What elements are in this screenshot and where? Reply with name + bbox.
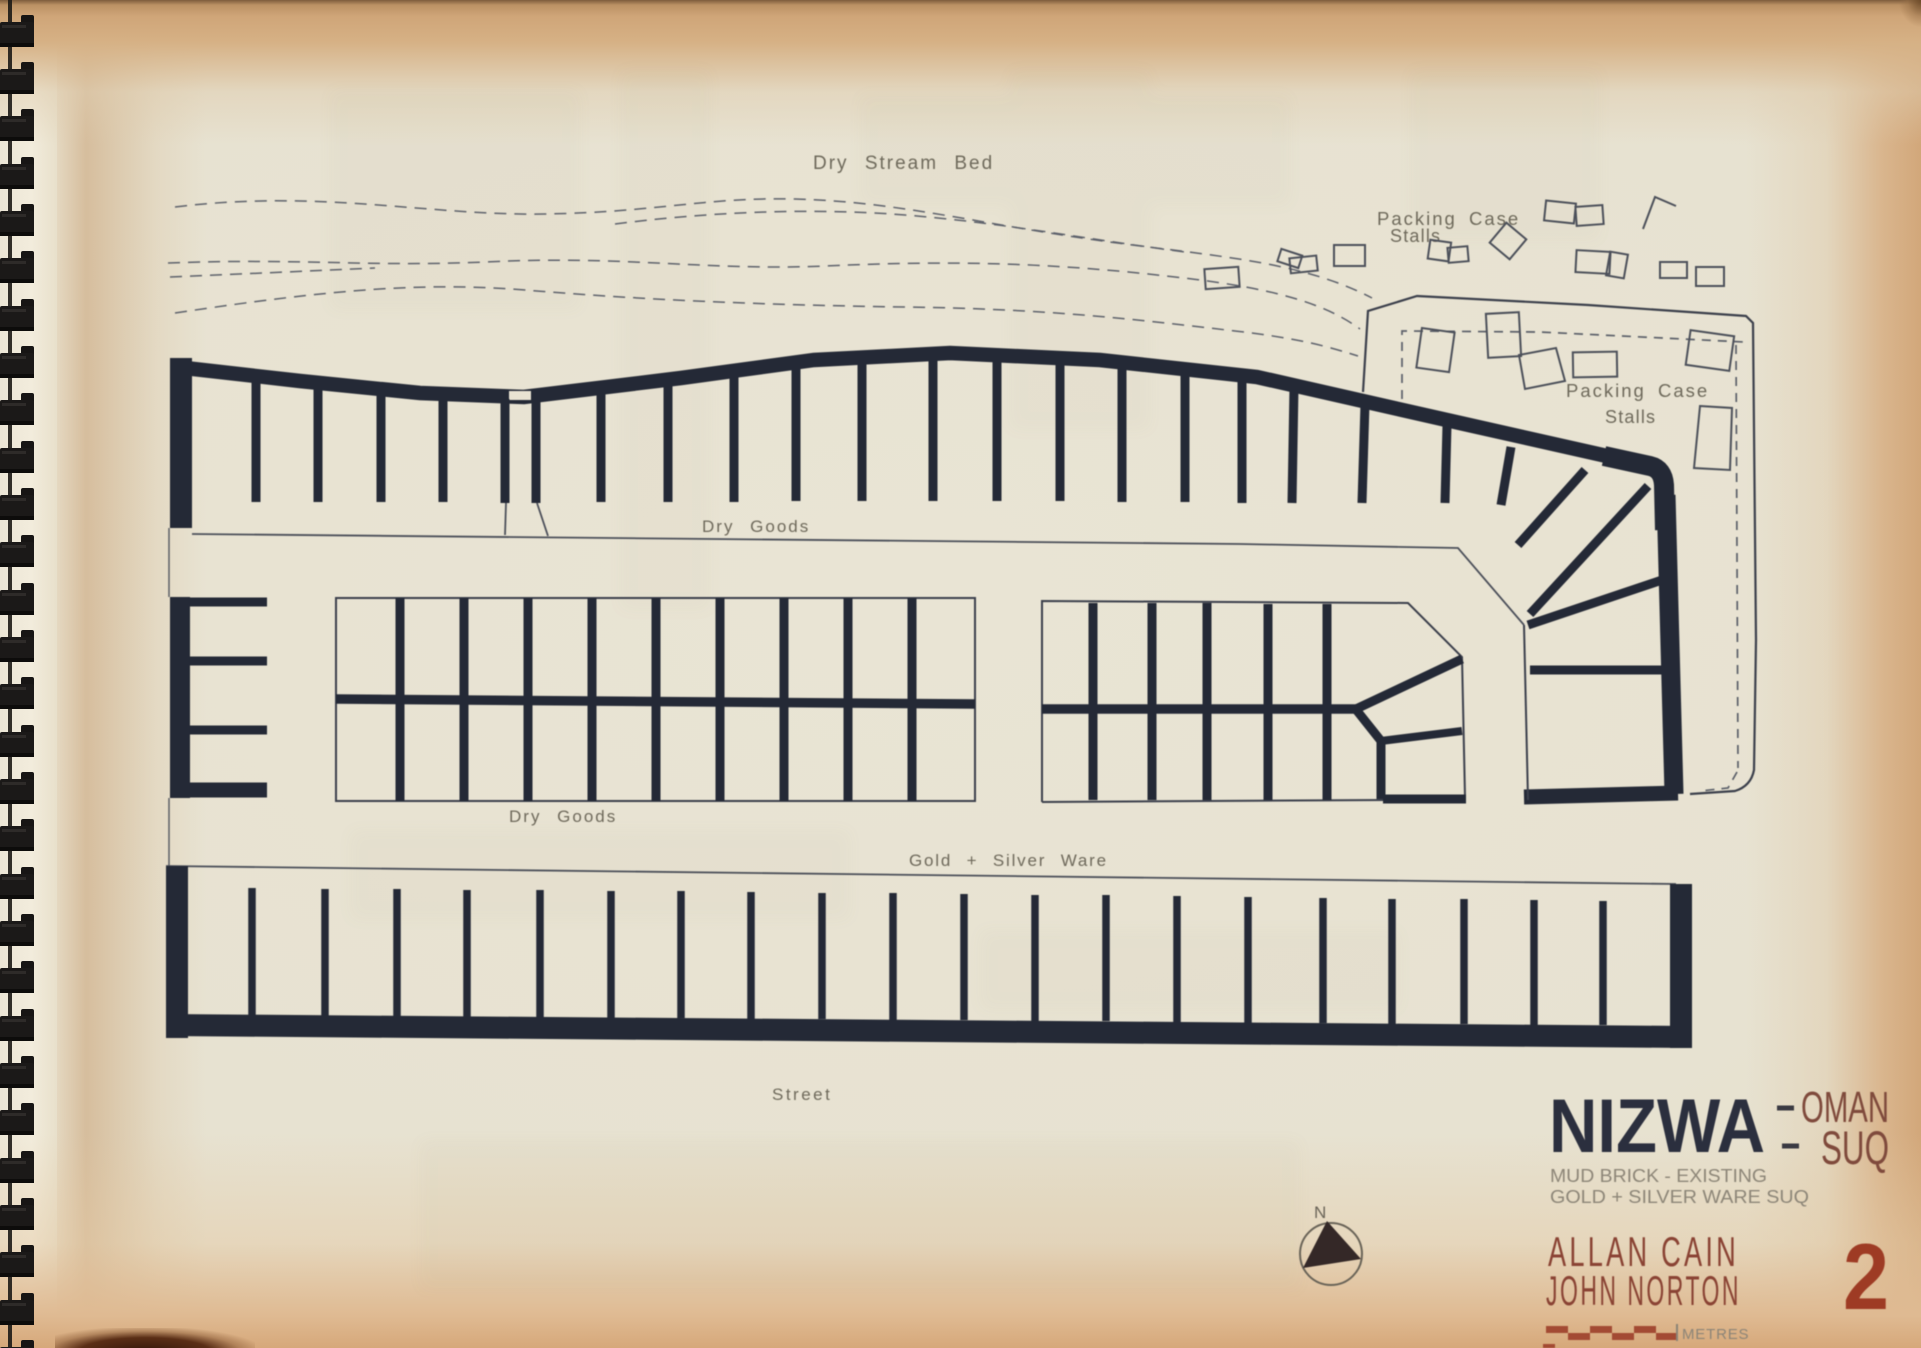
- svg-text:N: N: [1314, 1203, 1326, 1222]
- svg-text:JOHN NORTON: JOHN NORTON: [1546, 1267, 1741, 1314]
- svg-text:Dry Goods: Dry Goods: [509, 807, 617, 826]
- svg-text:Stalls: Stalls: [1390, 226, 1441, 246]
- svg-text:GOLD + SILVER WARE SUQ: GOLD + SILVER WARE SUQ: [1550, 1187, 1809, 1207]
- svg-text:METRES: METRES: [1682, 1326, 1749, 1343]
- svg-text:2: 2: [1843, 1224, 1889, 1329]
- svg-text:Stalls: Stalls: [1605, 407, 1656, 427]
- svg-text:Packing Case: Packing Case: [1566, 380, 1709, 401]
- svg-text:Street: Street: [772, 1085, 832, 1104]
- svg-text:MUD BRICK - EXISTING: MUD BRICK - EXISTING: [1550, 1166, 1767, 1186]
- svg-text:Dry Goods: Dry Goods: [702, 517, 810, 536]
- svg-text:NIZWA: NIZWA: [1549, 1084, 1765, 1169]
- svg-text:Gold + Silver Ware: Gold + Silver Ware: [909, 851, 1108, 870]
- svg-text:Dry Stream Bed: Dry Stream Bed: [813, 153, 994, 174]
- svg-text:SUQ: SUQ: [1821, 1121, 1889, 1174]
